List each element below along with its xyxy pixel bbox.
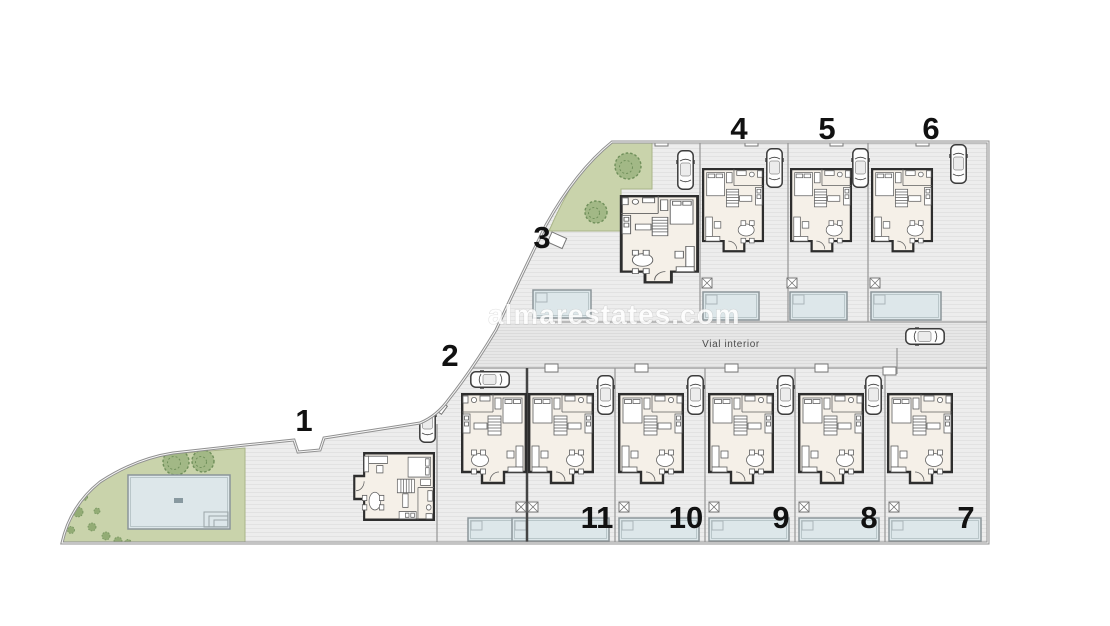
house-floorplan-plot-3 bbox=[621, 196, 698, 282]
plot-label-4: 4 bbox=[730, 111, 748, 146]
plot-label-11: 11 bbox=[581, 500, 614, 535]
house-floorplan-plot-5 bbox=[791, 169, 851, 251]
house-floorplan-plot-10 bbox=[619, 394, 683, 483]
pool-main bbox=[128, 475, 230, 529]
house-floorplan-plot-9 bbox=[709, 394, 773, 483]
car-icon bbox=[864, 376, 882, 414]
car-icon bbox=[776, 376, 794, 414]
plot-label-3: 3 bbox=[533, 220, 550, 255]
car-icon bbox=[676, 151, 694, 189]
gate-marker bbox=[815, 364, 828, 372]
pool-ladder bbox=[174, 498, 183, 503]
tree-icon bbox=[615, 153, 641, 179]
gate-marker bbox=[725, 364, 738, 372]
car-icon bbox=[906, 327, 944, 345]
shrub-icon bbox=[88, 523, 96, 531]
house-floorplan-plot-8 bbox=[799, 394, 863, 483]
pool-water bbox=[871, 292, 941, 320]
house-floorplan-plot-1 bbox=[354, 453, 434, 520]
utility-marker bbox=[619, 502, 629, 512]
gate-marker bbox=[545, 364, 558, 372]
site-plan-canvas: Vial interior almarestates.com 123456789… bbox=[0, 0, 1110, 626]
plot-label-1: 1 bbox=[295, 403, 312, 438]
plot-label-5: 5 bbox=[818, 111, 835, 146]
car-icon bbox=[851, 149, 869, 187]
house-floorplan-plot-4 bbox=[703, 169, 763, 251]
house-floorplan-plot-11 bbox=[529, 394, 593, 483]
car-icon bbox=[596, 376, 614, 414]
shrub-icon bbox=[68, 527, 75, 534]
house-floorplan-plot-7 bbox=[888, 394, 952, 483]
plot-label-10: 10 bbox=[669, 500, 703, 535]
utility-marker bbox=[528, 502, 538, 512]
pool-plot-6 bbox=[871, 292, 941, 320]
utility-marker bbox=[702, 278, 712, 288]
pool-water bbox=[790, 292, 847, 320]
plot-label-7: 7 bbox=[957, 500, 974, 535]
pool-plot-5 bbox=[790, 292, 847, 320]
house-floorplan-plot-2 bbox=[462, 394, 526, 483]
plot-label-6: 6 bbox=[922, 111, 939, 146]
utility-marker bbox=[889, 502, 899, 512]
tree-icon bbox=[585, 201, 607, 223]
car-icon bbox=[765, 149, 783, 187]
road-label: Vial interior bbox=[702, 339, 760, 350]
house-floorplan-plot-6 bbox=[872, 169, 932, 251]
tree-icon bbox=[192, 450, 214, 472]
tree-canopy bbox=[615, 153, 641, 179]
utility-marker bbox=[787, 278, 797, 288]
utility-marker bbox=[516, 502, 526, 512]
watermark: almarestates.com bbox=[488, 299, 741, 330]
gate-marker bbox=[883, 367, 896, 375]
gate-marker bbox=[635, 364, 648, 372]
car-icon bbox=[471, 370, 509, 388]
plot-label-9: 9 bbox=[772, 500, 789, 535]
site-plan-svg: Vial interior almarestates.com 123456789… bbox=[0, 0, 1110, 626]
plot-label-2: 2 bbox=[441, 338, 458, 373]
utility-marker bbox=[709, 502, 719, 512]
utility-marker bbox=[870, 278, 880, 288]
car-icon bbox=[949, 145, 967, 183]
car-icon bbox=[686, 376, 704, 414]
shrub-icon bbox=[102, 532, 110, 540]
plot-label-8: 8 bbox=[860, 500, 877, 535]
shrub-icon bbox=[94, 508, 100, 514]
utility-marker bbox=[799, 502, 809, 512]
